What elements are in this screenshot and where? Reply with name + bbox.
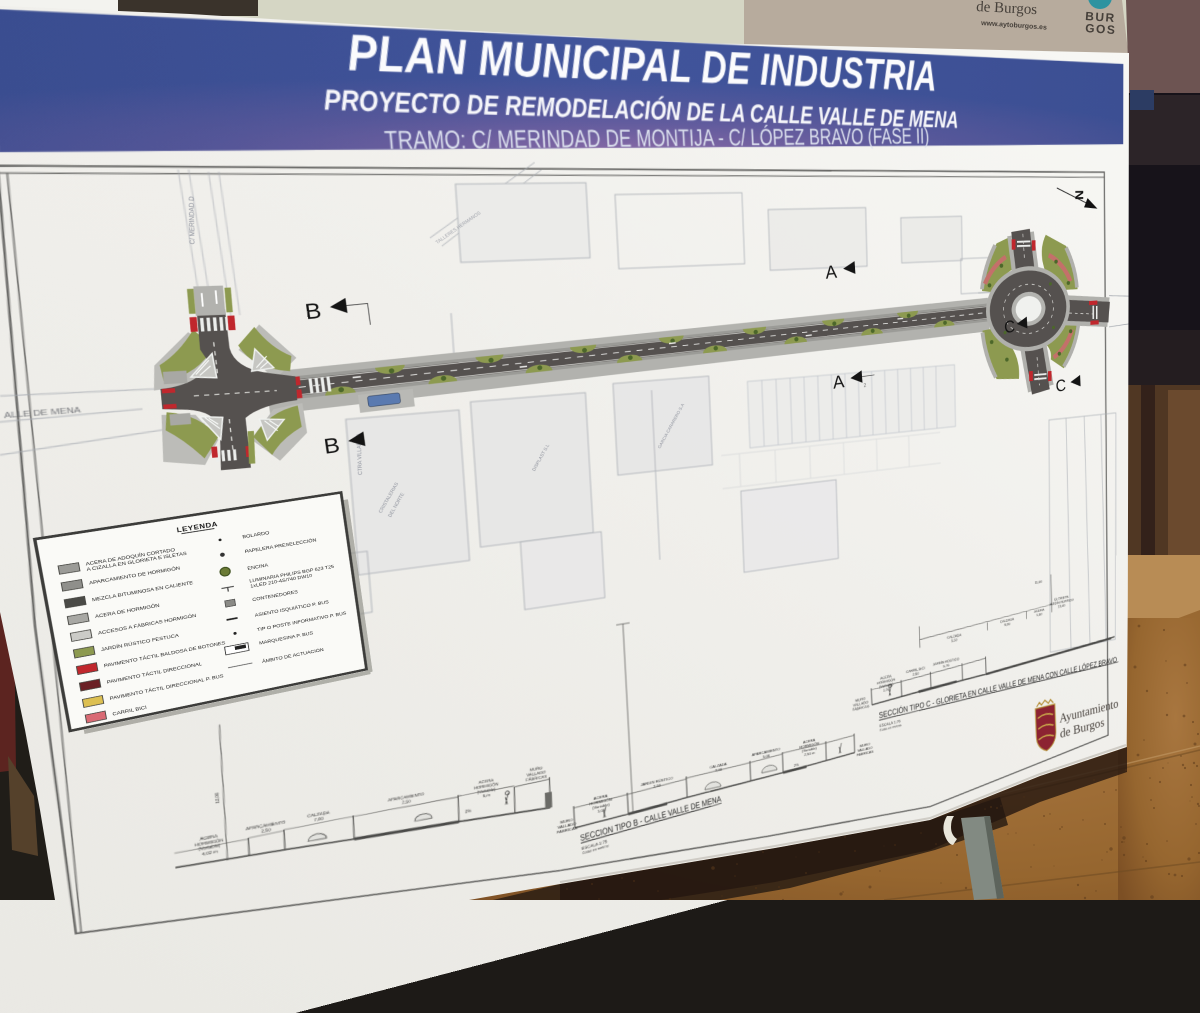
svg-text:de Burgos: de Burgos (976, 0, 1038, 18)
svg-text:GOS: GOS (1085, 21, 1117, 37)
